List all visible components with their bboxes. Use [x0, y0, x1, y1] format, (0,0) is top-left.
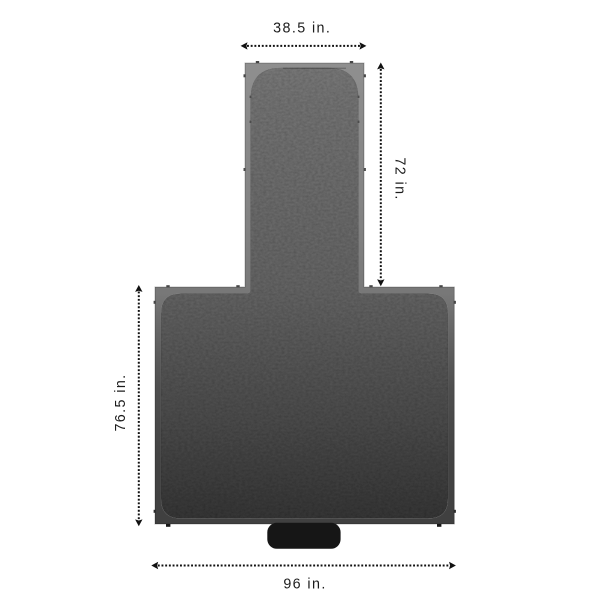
- svg-text:72 in.: 72 in.: [392, 157, 408, 200]
- svg-text:76.5 in.: 76.5 in.: [113, 373, 129, 431]
- svg-text:38.5 in.: 38.5 in.: [273, 21, 331, 37]
- svg-text:96 in.: 96 in.: [283, 576, 326, 592]
